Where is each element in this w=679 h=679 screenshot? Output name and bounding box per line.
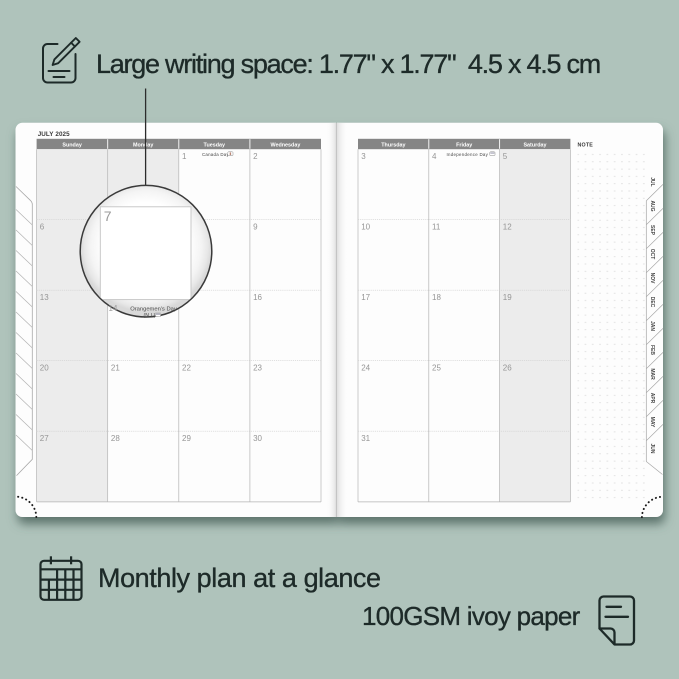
svg-text:NOV: NOV: [649, 273, 655, 285]
svg-text:5: 5: [503, 152, 508, 161]
svg-text:10: 10: [361, 223, 370, 232]
svg-text:JUL: JUL: [649, 177, 655, 186]
svg-text:31: 31: [361, 434, 370, 443]
svg-text:16: 16: [253, 293, 262, 302]
svg-text:DEC: DEC: [649, 297, 655, 308]
svg-text:18: 18: [432, 293, 441, 302]
svg-text:1: 1: [182, 152, 187, 161]
svg-text:Friday: Friday: [456, 142, 472, 148]
svg-text:Wednesday: Wednesday: [270, 142, 300, 148]
svg-text:(N.I.): (N.I.): [144, 313, 156, 319]
svg-text:Monday: Monday: [133, 142, 153, 148]
svg-text:29: 29: [182, 434, 191, 443]
svg-text:4: 4: [432, 152, 437, 161]
svg-text:NOTE: NOTE: [578, 142, 594, 148]
svg-text:27: 27: [40, 434, 49, 443]
svg-text:Sunday: Sunday: [62, 142, 81, 148]
svg-text:Independence Day: Independence Day: [447, 152, 489, 157]
svg-text:JUN: JUN: [649, 443, 655, 453]
svg-text:30: 30: [253, 434, 262, 443]
svg-text:FEB: FEB: [649, 345, 655, 355]
svg-text:22: 22: [182, 364, 191, 373]
svg-text:19: 19: [503, 293, 512, 302]
svg-text:26: 26: [503, 364, 512, 373]
svg-text:OCT: OCT: [649, 249, 655, 260]
svg-text:17: 17: [361, 293, 370, 302]
svg-text:12: 12: [503, 223, 512, 232]
svg-text:13: 13: [40, 293, 49, 302]
svg-text:20: 20: [40, 364, 49, 373]
svg-text:MAR: MAR: [649, 368, 655, 380]
svg-text:JAN: JAN: [649, 321, 655, 331]
svg-text:JULY 2025: JULY 2025: [38, 131, 70, 138]
svg-text:21: 21: [111, 364, 120, 373]
svg-text:Saturday: Saturday: [523, 142, 546, 148]
svg-text:2: 2: [253, 152, 258, 161]
svg-text:Canada Day: Canada Day: [202, 152, 229, 157]
svg-text:AUG: AUG: [649, 200, 655, 211]
svg-text:25: 25: [432, 364, 441, 373]
svg-text:11: 11: [432, 223, 441, 232]
svg-text:9: 9: [253, 223, 258, 232]
svg-text:3: 3: [361, 152, 366, 161]
svg-text:6: 6: [40, 223, 45, 232]
svg-text:7: 7: [104, 208, 112, 224]
svg-text:Thursday: Thursday: [381, 142, 405, 148]
svg-text:Orangemen's Day: Orangemen's Day: [130, 307, 177, 313]
svg-text:14: 14: [109, 304, 118, 313]
svg-text:SEP: SEP: [649, 225, 655, 236]
svg-text:APR: APR: [649, 393, 655, 404]
svg-text:Tuesday: Tuesday: [204, 142, 225, 148]
svg-text:23: 23: [253, 364, 262, 373]
svg-text:MAY: MAY: [649, 417, 655, 428]
svg-text:28: 28: [111, 434, 120, 443]
svg-text:24: 24: [361, 364, 370, 373]
